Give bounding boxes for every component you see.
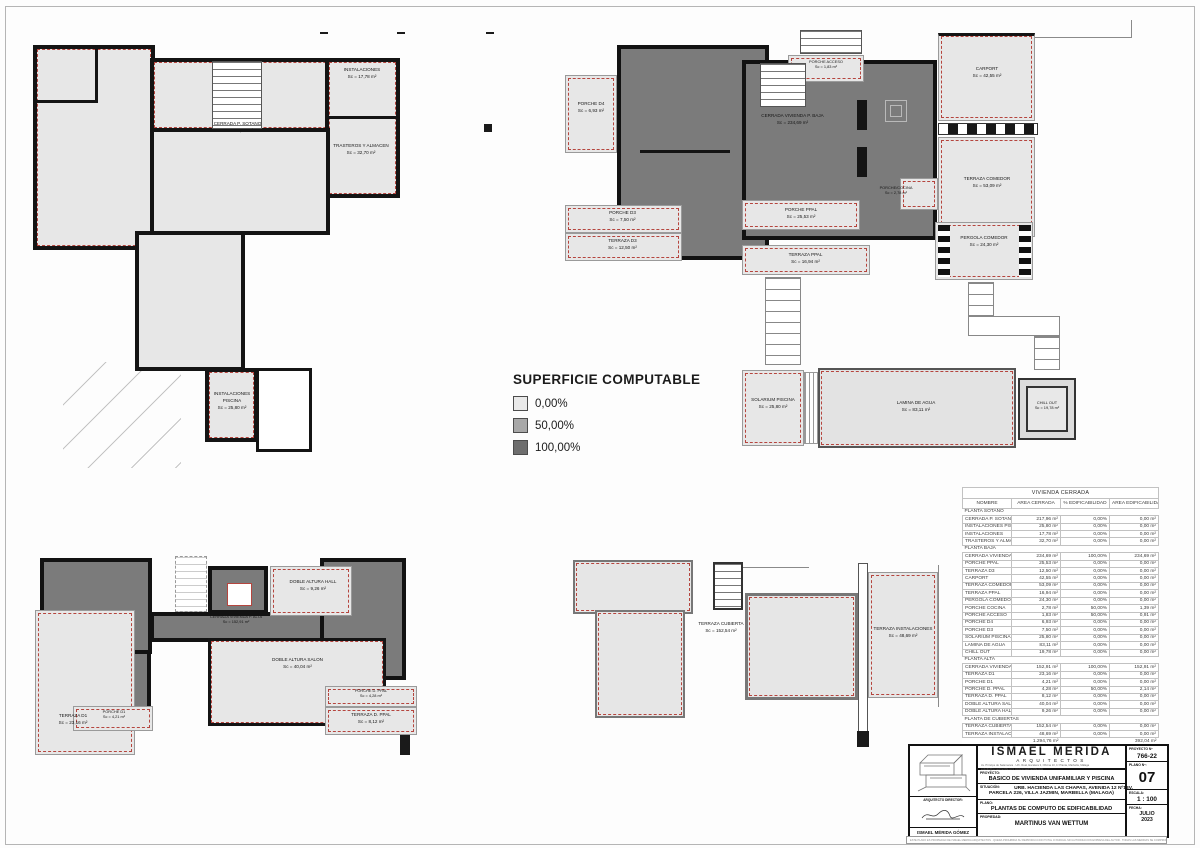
table-row: TERRAZA D. PPAL8,12 m²0,00%0,00 m² — [963, 693, 1159, 700]
situacion-value-2: PARCELA 226, VILLA JAZMIN, MARBELLA (MAL… — [978, 791, 1125, 796]
table-section-row: PLANTA SOTANO — [963, 508, 1159, 515]
room-label-da-hall: DOBLE ALTURA HALL Sc = 9,26 m² — [280, 578, 346, 592]
room-label-terraza-d3: TERRAZA D3 Sc = 12,50 m² — [585, 237, 660, 251]
garden-steps — [1034, 336, 1060, 370]
title-block-architect: ARQUITECTO DIRECTOR: ISMAEL MÉRIDA GÓMEZ — [910, 746, 978, 836]
table-row: CARPORT42,55 m²0,00%0,00 m² — [963, 575, 1159, 582]
title-block-center: ISMAEL MERIDA ARQUITECTOS Av. Príncipe d… — [978, 746, 1127, 836]
reference-square — [484, 124, 492, 132]
room-label-chillout: CHILL OUT Sc = 19,78 m² — [1020, 400, 1074, 411]
garden-steps — [968, 282, 994, 316]
room-label-instalaciones: INSTALACIONES Sc = 17,78 m² — [327, 66, 397, 80]
room-label-porche-d3: PORCHE D3 Sc = 7,50 m² — [585, 209, 660, 223]
table-row: TERRAZA INSTALACIONES48,69 m²0,00%0,00 m… — [963, 731, 1159, 738]
plano-num-cell: PLANO Nº: 07 — [1127, 762, 1167, 790]
fecha-value-2: 2023 — [1127, 817, 1167, 823]
garden-steps — [765, 277, 801, 365]
roof-stairs — [713, 562, 743, 610]
entry-steps — [800, 30, 862, 54]
room-label-terraza-ppal: TERRAZA PPAL Sc = 16,94 m² — [768, 251, 843, 265]
interior-wall — [36, 100, 98, 103]
ramp-hatch — [63, 362, 181, 468]
roof-terrace-c — [745, 593, 858, 700]
legend-swatch-0pct — [513, 396, 528, 411]
terrace-terraza-d1 — [35, 610, 135, 755]
room-label-terraza-d1: TERRAZA D1 Sc = 23,16 m² — [42, 712, 104, 726]
roof-terrace-a — [573, 560, 693, 614]
table-row: INSTALACIONES17,78 m²0,00%0,00 m² — [963, 531, 1159, 538]
table-row: TRASTEROS Y ALMACEN32,70 m²0,00%0,00 m² — [963, 538, 1159, 545]
legend-item-1: 50,00% — [513, 418, 574, 433]
room-shape — [150, 128, 330, 235]
room-label-terraza-comedor: TERRAZA COMEDOR Sc = 53,09 m² — [948, 175, 1026, 189]
table-title-row: VIVIENDA CERRADA — [963, 488, 1159, 499]
room-label-inst-piscina: INSTALACIONES PISCINA Sc = 25,80 m² — [206, 390, 258, 411]
garden-path — [968, 316, 1060, 336]
table-row: CERRADA VIVIENDA P. BAJA234,69 m²100,00%… — [963, 553, 1159, 560]
room-label-cerrada-alta: CERRADA VIVIENDA P. ALTA Sc = 152,91 m² — [196, 614, 276, 625]
room-label-terraza-cubierta: TERRAZA CUBIERTA Sc = 152,54 m² — [682, 620, 760, 634]
table-row: PORCHE COCINA2,78 m²50,00%1,39 m² — [963, 605, 1159, 612]
propiedad-value: MARTINUS VAN WETTUM — [978, 821, 1125, 827]
room-shape — [256, 368, 312, 452]
table-row: PORCHE D. PPAL4,28 m²50,00%2,14 m² — [963, 686, 1159, 693]
room-label-porche-acceso: PORCHE ACCESO Sc = 1,83 m² — [790, 59, 862, 70]
room-label-carport: CARPORT Sc = 42,55 m² — [948, 65, 1026, 79]
room-label-porche-cocina: PORCHE/COCINA Sc = 2,78 m² — [868, 185, 924, 196]
interior-wall — [640, 150, 730, 153]
wall-checker — [938, 123, 1038, 135]
areas-table-body: PLANTA SOTANOCERRADA P. SOTANO217,96 m²0… — [963, 508, 1159, 738]
table-row: LAMINA DE AGUA83,11 m²0,00%0,00 m² — [963, 642, 1159, 649]
interior-wall — [327, 116, 398, 119]
legend-item-2: 100,00% — [513, 440, 580, 455]
stairs-dashed-glyph — [175, 556, 207, 612]
studio-address: Av. Príncipe de Salamanca · Urb. Real, E… — [981, 764, 1089, 767]
drawing-sheet: INSTALACIONES Sc = 17,78 m² CERRADA P. S… — [0, 0, 1200, 848]
legal-note: ESTE PLANO ES PROPIEDAD DE ISMAEL MERIDA… — [906, 836, 1167, 844]
pergola-posts — [938, 225, 950, 277]
room-shape — [33, 45, 155, 250]
table-row: SOLARIUM PISCINA25,80 m²0,00%0,00 m² — [963, 634, 1159, 641]
tick-mark — [397, 32, 405, 34]
studio-header: ISMAEL MERIDA ARQUITECTOS Av. Príncipe d… — [978, 746, 1125, 770]
roof-line — [743, 567, 809, 568]
table-row: PORCHE D37,50 m²0,00%0,00 m² — [963, 627, 1159, 634]
table-row: CERRADA P. SOTANO217,96 m²0,00%0,00 m² — [963, 516, 1159, 523]
legend-title: SUPERFICIE COMPUTABLE — [513, 372, 700, 387]
legend-swatch-50pct — [513, 418, 528, 433]
edificability-table: VIVIENDA CERRADA NOMBRE AREA CERRADA % E… — [962, 487, 1159, 745]
table-row: TERRAZA PPAL16,94 m²0,00%0,00 m² — [963, 590, 1159, 597]
room-label-terraza-instalaciones: TERRAZA INSTALACIONES Sc = 48,69 m² — [872, 625, 934, 639]
proyecto-num-cell: PROYECTO Nº 766-22 — [1127, 746, 1167, 762]
room-label-pergola: PERGOLA COMEDOR Sc = 24,30 m² — [953, 234, 1015, 248]
interior-wall — [857, 100, 867, 130]
roof-line — [938, 565, 939, 707]
stair-void — [227, 583, 252, 606]
escala-cell: ESCALA: 1 : 100 — [1127, 790, 1167, 805]
house-sketch — [910, 746, 976, 797]
table-row: TERRAZA COMEDOR53,09 m²0,00%0,00 m² — [963, 582, 1159, 589]
proyecto-num: 766-22 — [1127, 753, 1167, 760]
propiedad-row: PROPIEDAD: MARTINUS VAN WETTUM — [978, 814, 1125, 836]
plano-row: PLANO: PLANTAS DE COMPUTO DE EDIFICABILI… — [978, 800, 1125, 814]
table-row: PORCHE PPAL25,53 m²0,00%0,00 m² — [963, 560, 1159, 567]
table-section-row: PLANTA BAJA — [963, 545, 1159, 552]
table-section-row: PLANTA ALTA — [963, 656, 1159, 663]
table-section-row: PLANTA DE CUBIERTAS — [963, 716, 1159, 723]
tick-mark — [486, 32, 494, 34]
roof-terrace-b — [595, 610, 685, 718]
plano-num: 07 — [1127, 769, 1167, 786]
room-label-porche-ppal: PORCHE PPAL Sc = 25,53 m² — [765, 206, 837, 220]
legend-swatch-100pct — [513, 440, 528, 455]
title-block-right: PROYECTO Nº 766-22 PLANO Nº: 07 ESCALA: … — [1127, 746, 1167, 836]
table-row: TERRAZA D312,50 m²0,00%0,00 m² — [963, 568, 1159, 575]
table-title: VIVIENDA CERRADA — [963, 488, 1159, 499]
wall-stub — [400, 735, 410, 755]
room-label-solarium: SOLARIUM PISCINA Sc = 25,80 m² — [744, 396, 802, 410]
room-label-terraza-d-ppal: TERRAZA D. PPAL Sc = 8,12 m² — [330, 711, 412, 725]
director-name: ISMAEL MÉRIDA GÓMEZ — [910, 827, 976, 836]
fecha-cell: FECHA: JULIO 2023 — [1127, 805, 1167, 836]
pergola-posts — [1019, 225, 1031, 277]
pool-steps — [804, 372, 818, 444]
table-row: PERGOLA COMEDOR24,30 m²0,00%0,00 m² — [963, 597, 1159, 604]
tick-mark — [320, 32, 328, 34]
interior-wall — [95, 48, 98, 102]
escala-value: 1 : 100 — [1127, 796, 1167, 803]
room-label-porche-d4: PORCHE D4 Sc = 6,93 m² — [566, 100, 616, 114]
room-shape — [135, 231, 245, 371]
table-row: INSTALACIONES PISCINA25,80 m²0,00%0,00 m… — [963, 523, 1159, 530]
room-label-cerrada-sotano: CERRADA P. SOTANO Sc = 217,96 m² — [200, 120, 275, 134]
interior-wall — [857, 147, 867, 177]
room-label-da-salon: DOBLE ALTURA SALON Sc = 40,04 m² — [260, 656, 335, 670]
table-row: CERRADA VIVIENDA P. ALTA152,91 m²100,00%… — [963, 664, 1159, 671]
wall-stub — [857, 731, 869, 747]
signature — [910, 802, 976, 827]
situacion-row: SITUACIÓN: URB. HACIENDA LAS CHAPAS, AVE… — [978, 784, 1125, 800]
proyecto-value: BASICO DE VIVIENDA UNIFAMILIAR Y PISCINA — [978, 776, 1125, 782]
plano-value: PLANTAS DE COMPUTO DE EDIFICABILIDAD — [978, 806, 1125, 812]
room-label-cerrada-baja: CERRADA VIVIENDA P. BAJA Sc = 234,69 m² — [750, 112, 835, 126]
room-label-trasteros: TRASTEROS Y ALMACEN Sc = 32,70 m² — [322, 142, 400, 156]
table-header-row: NOMBRE AREA CERRADA % EDIFICABILIDAD ARE… — [963, 499, 1159, 508]
studio-name: ISMAEL MERIDA — [978, 747, 1125, 759]
table-row: DOBLE ALTURA SALON40,04 m²0,00%0,00 m² — [963, 701, 1159, 708]
room-label-lamina: LAMINA DE AGUA Sc = 83,11 m² — [876, 399, 956, 413]
stairs-glyph — [212, 61, 262, 129]
table-row: TERRAZA D123,16 m²0,00%0,00 m² — [963, 671, 1159, 678]
roof-wall-strip — [858, 563, 868, 745]
table-row: TERRAZA CUBIERTA152,54 m²0,00%0,00 m² — [963, 723, 1159, 730]
table-row: DOBLE ALTURA HALL9,26 m²0,00%0,00 m² — [963, 708, 1159, 715]
site-line — [1131, 20, 1132, 38]
table-row: PORCHE D14,21 m²0,00%0,00 m² — [963, 679, 1159, 686]
table-row: CHILL OUT19,78 m²0,00%0,00 m² — [963, 649, 1159, 656]
proyecto-row: PROYECTO: BASICO DE VIVIENDA UNIFAMILIAR… — [978, 770, 1125, 784]
legend-item-0: 0,00% — [513, 396, 568, 411]
room-label-porche-d-ppal: PORCHE D. PPAL Sc = 4,28 m² — [328, 688, 414, 699]
table-row: PORCHE ACCESO1,83 m²50,00%0,91 m² — [963, 612, 1159, 619]
title-block: ARQUITECTO DIRECTOR: ISMAEL MÉRIDA GÓMEZ… — [908, 744, 1169, 838]
table-row: PORCHE D46,93 m²0,00%0,00 m² — [963, 619, 1159, 626]
furniture-glyph — [885, 100, 907, 122]
